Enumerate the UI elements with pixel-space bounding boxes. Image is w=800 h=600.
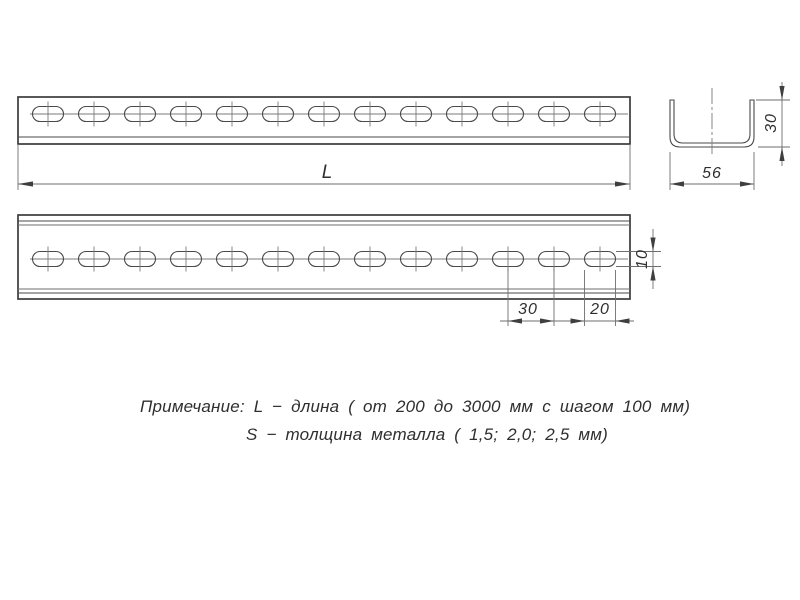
- drawing-canvas: L 30 56 30: [0, 0, 800, 600]
- cross-section-view: [670, 88, 754, 157]
- section-height-dimension: 30: [756, 82, 790, 166]
- pitch-dimension: 30: [500, 267, 634, 326]
- dim-section-height: 30: [763, 113, 780, 133]
- dim-hole-pitch: 30: [518, 301, 538, 318]
- technical-drawing: L 30 56 30: [0, 0, 800, 600]
- dim-slot-length: 20: [589, 301, 610, 318]
- length-dimension: L: [18, 144, 630, 190]
- slot-length-dimension: 20: [571, 270, 630, 326]
- face-view: [18, 215, 630, 299]
- section-width-dimension: 56: [670, 152, 754, 190]
- note-line-1: Примечание: L − длина ( от 200 до 3000 м…: [140, 397, 690, 416]
- side-view: [18, 97, 630, 144]
- note-line-2: S − толщина металла ( 1,5; 2,0; 2,5 мм): [246, 425, 608, 444]
- dim-section-width: 56: [702, 165, 722, 182]
- dim-slot-height: 10: [634, 249, 651, 269]
- dim-length-label: L: [322, 162, 333, 183]
- note-text: Примечание: L − длина ( от 200 до 3000 м…: [140, 397, 690, 444]
